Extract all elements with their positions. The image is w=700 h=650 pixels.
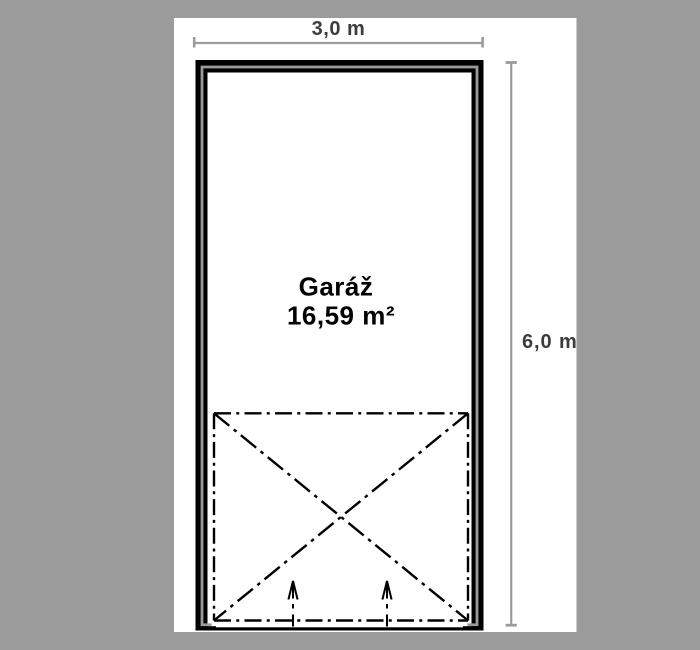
svg-text:16,59 m²: 16,59 m²	[287, 301, 395, 331]
svg-text:Garáž: Garáž	[299, 272, 374, 302]
svg-text:6,0 m: 6,0 m	[522, 331, 578, 353]
svg-text:3,0 m: 3,0 m	[312, 18, 366, 40]
